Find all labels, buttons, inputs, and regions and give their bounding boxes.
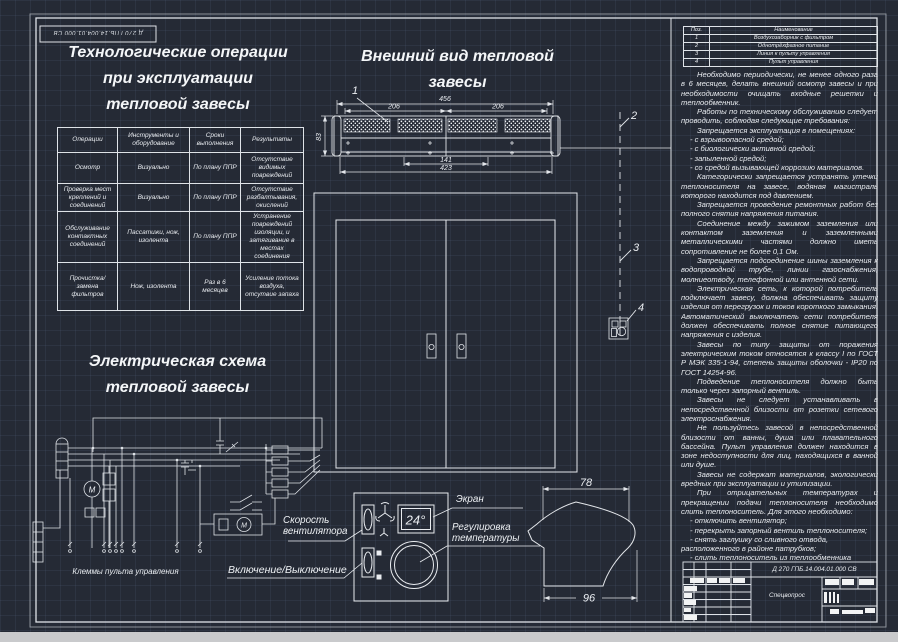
schematic-drawing: M M: [33, 418, 322, 562]
instruction-paragraph: Завесы не следует устанавливать в непоср…: [681, 395, 878, 423]
ops-cell: Устранение повреждений изоляции, и затяг…: [241, 212, 304, 263]
power-label: Включение/Выключение: [228, 565, 347, 576]
curtain-drawing: 456 206 206 141 423 83 1: [316, 85, 671, 174]
parts-cell: Однотрёхфазное питание: [710, 43, 878, 51]
window-bottom-bar: [0, 632, 898, 642]
schematic-title: Электрическая схема тепловой завесы: [70, 349, 285, 401]
parts-cell: 1: [684, 35, 710, 43]
instruction-paragraph: Категорически запрещается устранять утеч…: [681, 172, 878, 200]
parts-cell: Пульт управления: [710, 59, 878, 67]
ops-cell: По плану ППР: [190, 153, 241, 184]
parts-cell: 4: [684, 59, 710, 67]
heater-resistors: [266, 444, 320, 498]
instruction-paragraph: Запрещается проведение ремонтных работ б…: [681, 200, 878, 219]
motor-2-symbol: M: [200, 498, 275, 535]
ops-cell: Раз в 6 месяцев: [190, 263, 241, 311]
power-button[interactable]: [362, 548, 374, 577]
instruction-paragraph: Завесы не содержат материалов, экологиче…: [681, 470, 878, 489]
ops-cell: Усиление потока воздуха, отсутвие запаха: [241, 263, 304, 311]
instruction-paragraph: - запыленной средой;: [681, 154, 878, 163]
fan-speed-label-line2: вентилятора: [283, 526, 343, 537]
instruction-paragraph: Электрическая сеть, к которой потребител…: [681, 284, 878, 340]
operations-title-line3: тепловой завесы: [44, 92, 312, 118]
parts-cell: Воздухозаборник с фильтром: [710, 35, 878, 43]
fan-speed-label-line1: Скорость: [283, 515, 343, 526]
ops-cell: По плану ППР: [190, 184, 241, 212]
door-handle-right: [457, 334, 466, 358]
svg-text:M: M: [89, 486, 96, 495]
ops-cell: Нож, изолента: [118, 263, 190, 311]
instruction-paragraph: Завесы по типу защиты от поражения элект…: [681, 340, 878, 377]
dimension-overall-width: 456: [439, 96, 451, 103]
title-block-doc-number: Д 270 ГПБ.14.004.01.000 СВ: [752, 566, 877, 573]
screw-marks: [346, 141, 554, 155]
profile-drawing: 78 96: [528, 477, 637, 605]
instruction-paragraph: - слить теплоноситель из теплообменника …: [681, 553, 878, 560]
schematic-title-line1: Электрическая схема: [70, 349, 285, 375]
ops-cell: Визуально: [118, 184, 190, 212]
door-drawing: [314, 193, 577, 472]
callout-lines: 2 3 4: [609, 110, 644, 340]
ops-header-cell: Инструменты и оборудование: [118, 128, 190, 153]
ops-cell: Визуально: [118, 153, 190, 184]
wall-panel-icon: [609, 318, 628, 339]
indicator-square-top: [377, 551, 381, 555]
temperature-value: 24°: [405, 513, 426, 528]
parts-header-cell: Наименование: [710, 27, 878, 35]
parts-header-cell: Поз.: [684, 27, 710, 35]
appearance-title-line2: завесы: [325, 70, 590, 96]
operations-table: Операции Инструменты и оборудование Срок…: [57, 127, 304, 311]
temperature-label: Регулировка температуры: [452, 522, 519, 544]
door-handle-left: [427, 334, 436, 358]
control-panel-drawing: 24°: [227, 493, 540, 601]
temperature-display: 24°: [398, 505, 434, 533]
ops-cell: Отсутствие разбалтывания, окислений: [241, 184, 304, 212]
fan-icon: [376, 503, 394, 537]
temperature-label-line1: Регулировка: [452, 522, 519, 533]
fan-speed-label: Скорость вентилятора: [283, 515, 343, 537]
ops-cell: По плану ППР: [190, 212, 241, 263]
callout-3-label: 3: [633, 242, 640, 254]
corner-stamp-code: Д 270 ГПБ.14.004.01.000 СВ: [42, 29, 154, 35]
svg-text:M: M: [241, 523, 247, 530]
instruction-paragraph: - снять заглушку со сливного отвода, рас…: [681, 535, 878, 554]
instruction-paragraph: Необходимо периодически, не менее одного…: [681, 70, 878, 107]
ops-cell: Проверка мест креплений и соединений: [58, 184, 118, 212]
schematic-title-line2: тепловой завесы: [70, 375, 285, 401]
junction-dots: [92, 447, 268, 468]
appearance-title: Внешний вид тепловой завесы: [325, 44, 590, 96]
ops-header-cell: Сроки выполнения: [190, 128, 241, 153]
dimension-height: 83: [316, 133, 323, 141]
instruction-paragraph: - со средой вызывающей коррозию материал…: [681, 163, 878, 172]
parts-cell: 3: [684, 51, 710, 59]
dimension-bottom-width: 423: [440, 165, 452, 172]
ops-header-cell: Операции: [58, 128, 118, 153]
callout-4-label: 4: [638, 302, 644, 314]
instruction-paragraph: - перекрыть запорный вентиль теплоносите…: [681, 526, 878, 535]
instruction-paragraph: Работы по техническому обслуживанию след…: [681, 107, 878, 126]
instruction-paragraph: - отключить вентилятор;: [681, 516, 878, 525]
terminal-drops: [68, 448, 202, 552]
profile-dimensions: [543, 486, 637, 602]
instruction-paragraph: - с биологически активной средой;: [681, 144, 878, 153]
instruction-paragraph: Не пользуйтесь завесой в непосредственно…: [681, 423, 878, 469]
dimension-profile-top: 78: [580, 477, 593, 489]
motor-1-symbol: M: [84, 448, 105, 548]
parts-table: Поз. Наименование 1 Воздухозаборник с фи…: [683, 26, 878, 67]
curtain-grille: [344, 119, 550, 132]
instruction-paragraph: Запрещается подсоединение шины заземлени…: [681, 256, 878, 284]
dimension-mount-span: 141: [440, 157, 452, 164]
screen-label: Экран: [456, 494, 484, 505]
instruction-paragraph: Запрещается эксплуатация в помещениях:: [681, 126, 878, 135]
connector-block: [56, 438, 68, 478]
operations-title-line2: при эксплуатации: [44, 66, 312, 92]
appearance-title-line1: Внешний вид тепловой: [325, 44, 590, 70]
ops-cell: Прочистка/замена фильтров: [58, 263, 118, 311]
terminals-label: Клеммы пульта управления: [68, 567, 183, 576]
instruction-paragraph: - с взрывоопасной средой;: [681, 135, 878, 144]
ops-cell: Отсутствие видимых повреждений: [241, 153, 304, 184]
indicator-square-bottom: [377, 575, 381, 579]
instruction-paragraph: Подведение теплоносителя должно быть тол…: [681, 377, 878, 396]
dimension-profile-bottom: 96: [583, 593, 596, 605]
curtain-dimensions: [321, 100, 553, 174]
operations-title-line1: Технологические операции: [44, 40, 312, 66]
maintenance-instructions: Необходимо периодически, не менее одного…: [681, 70, 878, 560]
instruction-paragraph: Соединение между зажимом заземления или …: [681, 219, 878, 256]
dimension-segment-right: 206: [491, 104, 504, 111]
temperature-knob[interactable]: [391, 542, 438, 589]
instruction-paragraph: При отрицательных температурах и прекращ…: [681, 488, 878, 516]
callout-2-label: 2: [630, 110, 637, 122]
temperature-label-line2: температуры: [452, 533, 519, 544]
title-block-topic: Спецвопрос: [754, 592, 820, 599]
ops-cell: Осмотр: [58, 153, 118, 184]
ops-cell: Пассатижи, нож, изолента: [118, 212, 190, 263]
parts-cell: Линия к пульту управления: [710, 51, 878, 59]
ops-header-cell: Результаты: [241, 128, 304, 153]
edge-terminal-strip: [33, 470, 60, 562]
fan-speed-button[interactable]: [362, 505, 374, 534]
cad-drawing-sheet: 456 206 206 141 423 83 1 2 3 4: [0, 0, 898, 642]
ops-cell: Обслуживание контактных соединений: [58, 212, 118, 263]
dimension-segment-left: 206: [387, 104, 400, 111]
parts-cell: 2: [684, 43, 710, 51]
operations-title: Технологические операции при эксплуатаци…: [44, 40, 312, 118]
